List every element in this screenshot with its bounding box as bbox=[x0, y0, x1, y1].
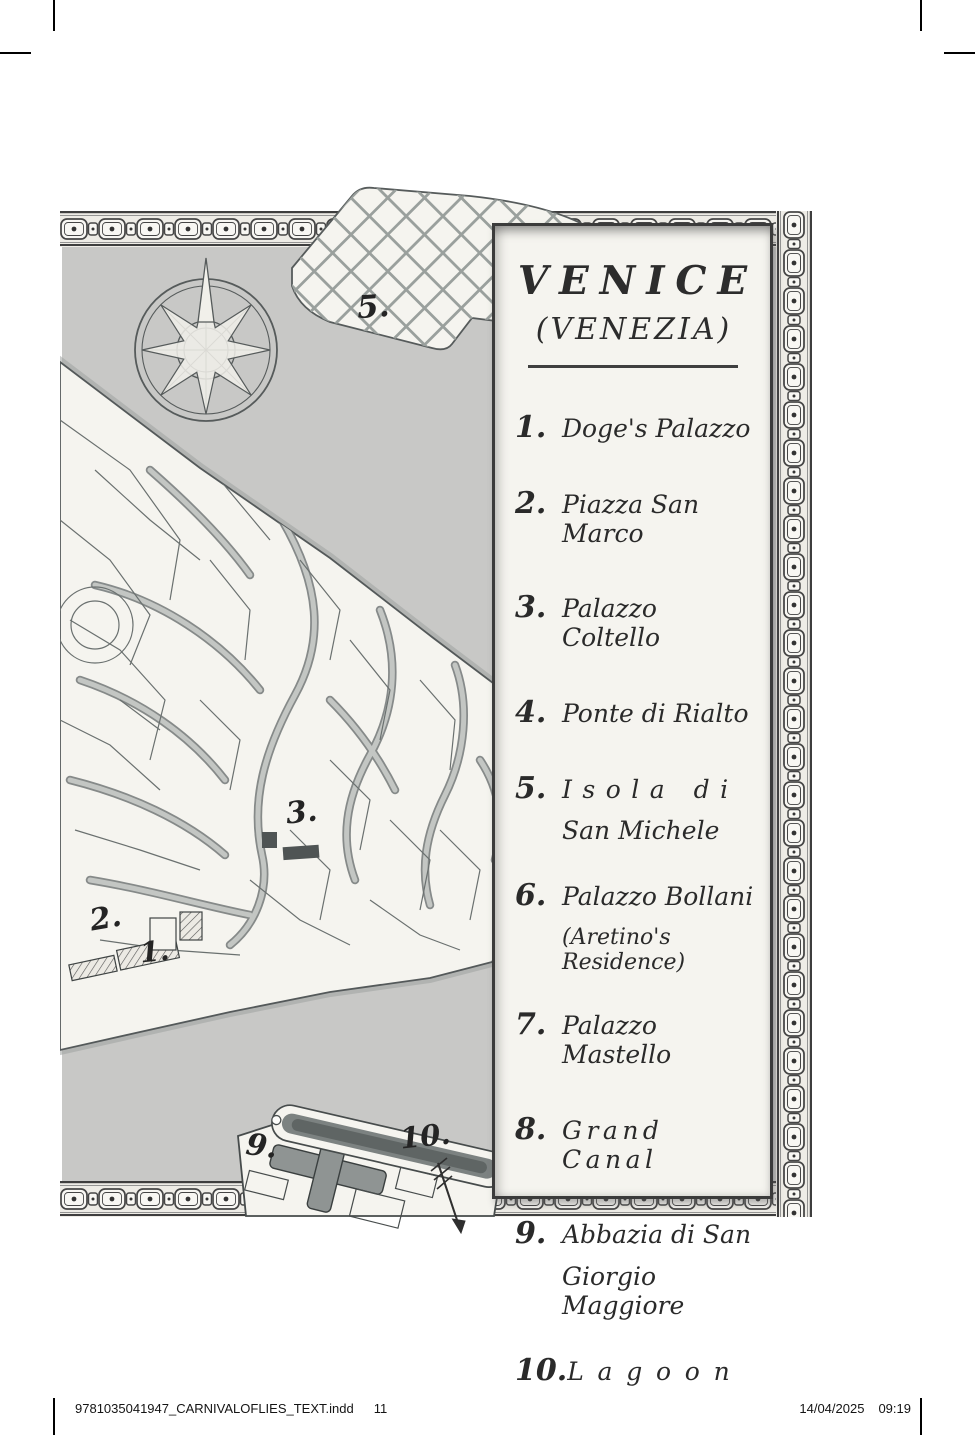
legend-item-number: 9. bbox=[515, 1216, 562, 1251]
legend-item-label: Abbazia di San Giorgio Maggiore bbox=[562, 1221, 762, 1320]
legend-item-line1: Ponte di Rialto bbox=[562, 699, 749, 728]
legend-item-number: 2. bbox=[515, 486, 562, 521]
legend-subtitle: (VENEZIA) bbox=[495, 312, 770, 347]
proof-footer-right: 14/04/202509:19 bbox=[799, 1401, 911, 1416]
crop-mark bbox=[0, 52, 31, 54]
legend-item-line1: Isola di bbox=[562, 775, 739, 804]
legend-item-number: 10. bbox=[515, 1353, 567, 1388]
map-label-9: 9. bbox=[244, 1130, 279, 1164]
proof-time: 09:19 bbox=[878, 1401, 911, 1416]
proof-page-number: 11 bbox=[374, 1401, 388, 1416]
legend-item-label: Lagoon bbox=[567, 1358, 743, 1400]
map-label-5: 5. bbox=[356, 291, 390, 324]
legend-item: 9. Abbazia di San Giorgio Maggiore bbox=[515, 1216, 762, 1320]
crop-mark bbox=[944, 52, 975, 54]
legend-item: 10. Lagoon bbox=[515, 1353, 762, 1400]
map-label-2: 2. bbox=[88, 902, 124, 937]
legend-item: 2. Piazza San Marco bbox=[515, 486, 762, 562]
legend-item-label: Isola di San Michele bbox=[562, 776, 739, 847]
legend-item-line1: Doge's Palazzo bbox=[562, 414, 750, 443]
legend-item-line2: Giorgio Maggiore bbox=[562, 1263, 762, 1321]
venice-map-illustration: 5. 3. 2. 1. 9. 10. VENICE (VENEZIA) 1. D… bbox=[60, 180, 812, 1235]
legend-title: VENICE bbox=[495, 258, 770, 304]
legend-item-line1: Palazzo Mastello bbox=[562, 1011, 671, 1069]
legend-item-number: 5. bbox=[515, 771, 562, 806]
legend-item-label: Palazzo Mastello bbox=[562, 1012, 762, 1083]
map-label-1: 1. bbox=[139, 937, 171, 968]
legend-list: 1. Doge's Palazzo 2. Piazza San Marco 3. bbox=[515, 410, 762, 1399]
crop-mark bbox=[920, 1398, 922, 1435]
crop-mark bbox=[53, 0, 55, 31]
book-proof-page: 5. 3. 2. 1. 9. 10. VENICE (VENEZIA) 1. D… bbox=[0, 0, 975, 1435]
legend-item-label: Grand Canal bbox=[562, 1117, 762, 1188]
legend-item-number: 1. bbox=[515, 410, 562, 445]
map-legend-panel: VENICE (VENEZIA) 1. Doge's Palazzo 2. Pi… bbox=[492, 223, 773, 1199]
map-label-3: 3. bbox=[285, 796, 319, 829]
legend-item-line1: Palazzo Coltello bbox=[562, 594, 660, 652]
legend-item-label: Doge's Palazzo bbox=[562, 415, 750, 457]
proof-footer-left: 9781035041947_CARNIVALOFLIES_TEXT.indd11 bbox=[75, 1401, 387, 1416]
legend-item-line1: Abbazia di San bbox=[562, 1220, 751, 1249]
legend-item: 7. Palazzo Mastello bbox=[515, 1007, 762, 1083]
legend-item: 4. Ponte di Rialto bbox=[515, 695, 762, 742]
chain-border-right bbox=[776, 211, 812, 1217]
legend-item-line1: Grand Canal bbox=[562, 1116, 663, 1174]
legend-item-line2: (Aretino's Residence) bbox=[562, 925, 762, 976]
legend-item: 8. Grand Canal bbox=[515, 1112, 762, 1188]
legend-divider bbox=[528, 365, 738, 368]
legend-item-number: 7. bbox=[515, 1007, 562, 1042]
legend-item-number: 4. bbox=[515, 695, 562, 730]
legend-item-number: 8. bbox=[515, 1112, 562, 1147]
legend-item-label: Palazzo Bollani (Aretino's Residence) bbox=[562, 883, 762, 975]
proof-date: 14/04/2025 bbox=[799, 1401, 864, 1416]
legend-item-line1: Piazza San Marco bbox=[562, 490, 699, 548]
legend-item: 5. Isola di San Michele bbox=[515, 771, 762, 847]
crop-mark bbox=[53, 1398, 55, 1435]
legend-item-label: Palazzo Coltello bbox=[562, 595, 762, 666]
legend-item-number: 6. bbox=[515, 878, 562, 913]
crop-mark bbox=[920, 0, 922, 31]
proof-filename: 9781035041947_CARNIVALOFLIES_TEXT.indd bbox=[75, 1401, 354, 1416]
legend-item: 1. Doge's Palazzo bbox=[515, 410, 762, 457]
map-label-10: 10. bbox=[399, 1119, 452, 1153]
legend-item-line2: San Michele bbox=[562, 817, 739, 846]
legend-item: 6. Palazzo Bollani (Aretino's Residence) bbox=[515, 878, 762, 975]
legend-item: 3. Palazzo Coltello bbox=[515, 590, 762, 666]
legend-item-number: 3. bbox=[515, 590, 562, 625]
legend-item-line1: Palazzo Bollani bbox=[562, 882, 753, 911]
legend-item-label: Ponte di Rialto bbox=[562, 700, 749, 742]
legend-item-line1: Lagoon bbox=[567, 1357, 743, 1386]
legend-item-label: Piazza San Marco bbox=[562, 491, 762, 562]
